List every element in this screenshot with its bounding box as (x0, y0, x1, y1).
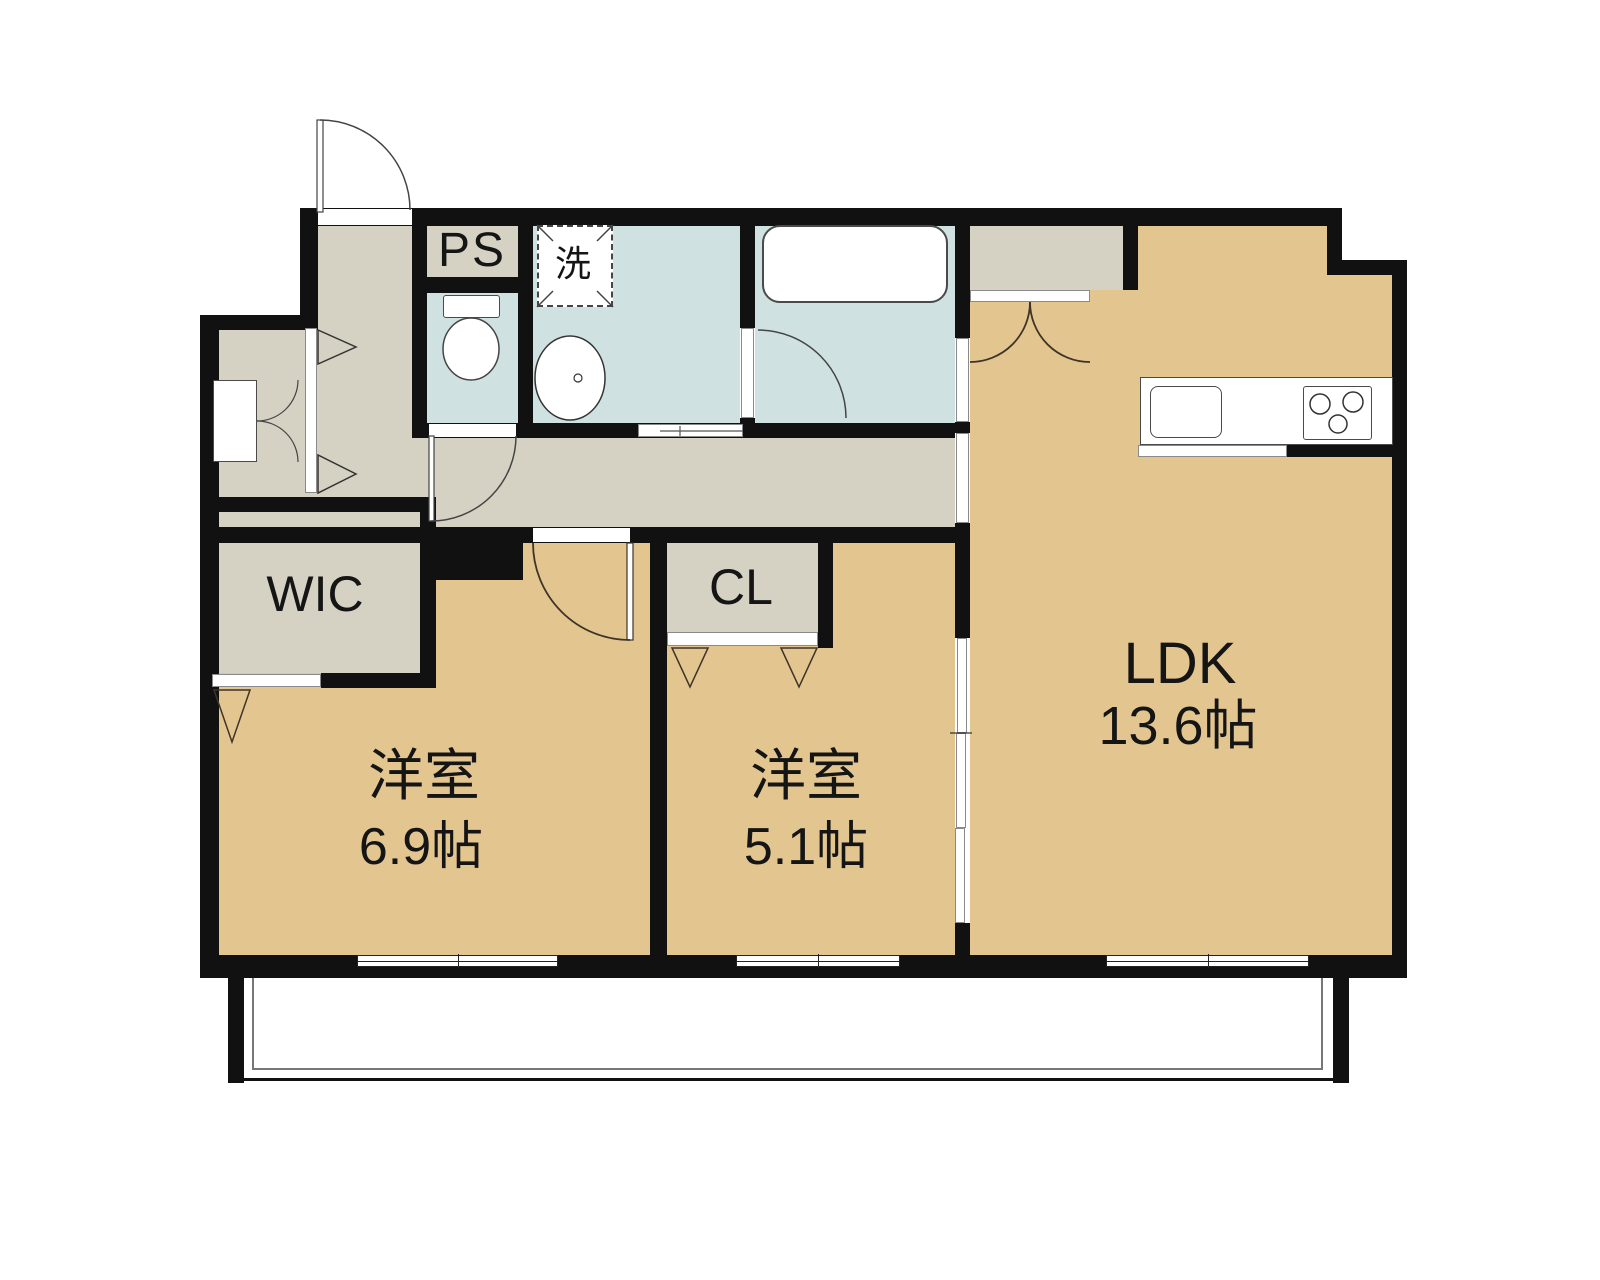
floor-plan: PS 洗 WIC CL 洋室 6.9帖 洋室 5.1帖 LDK 13.6帖 (0, 0, 1600, 1280)
wall (518, 208, 533, 438)
hall-ldk-opening-lower (956, 433, 969, 523)
wall-right (1392, 260, 1407, 975)
ldk-window (1106, 955, 1309, 967)
room1-name-label: 洋室 (368, 748, 480, 804)
wic-label: WIC (266, 569, 363, 619)
kitchen-sink (1150, 386, 1222, 438)
wall (412, 277, 518, 293)
wall (818, 543, 833, 648)
balcony-end-wall-left (228, 965, 244, 1083)
wall (200, 315, 318, 330)
cl-label: CL (709, 562, 773, 612)
entrance-door-opening (318, 209, 412, 225)
building-notch (1342, 208, 1393, 261)
wall (955, 208, 970, 338)
cl-folding-door (667, 632, 818, 646)
ldk-closet-area (970, 226, 1123, 290)
laundry-label: 洗 (555, 246, 591, 282)
room2-size-label: 5.1帖 (744, 821, 868, 873)
wall (955, 923, 970, 958)
wall (412, 208, 427, 438)
entrance-step-strip (305, 328, 317, 493)
ldk-size-label: 13.6帖 (1098, 699, 1257, 753)
balcony-outer-rail (228, 1078, 1349, 1081)
shoe-cabinet (213, 380, 257, 462)
ps-label: PS (438, 227, 506, 275)
wall (200, 497, 436, 512)
wall (321, 673, 436, 688)
room2-window (736, 955, 900, 967)
entrance-door-arc (320, 120, 410, 210)
ldk-name-label: LDK (1124, 635, 1237, 693)
room1-size-label: 6.9帖 (359, 821, 483, 873)
hall-ldk-opening-upper (956, 338, 969, 422)
wall (1327, 208, 1342, 268)
ldk-closet-door-opening (970, 290, 1090, 302)
stove (1303, 386, 1372, 440)
wall-kitchen-stub (1287, 443, 1393, 457)
room2-ldk-sliding-panel (955, 828, 965, 923)
washroom-sliding-door (638, 424, 743, 437)
wall (300, 208, 318, 330)
bath-door-leaf (741, 328, 754, 418)
kitchen-counter-front (1138, 445, 1287, 457)
toilet-tank (443, 295, 500, 318)
wic-folding-door (212, 674, 321, 687)
toilet-door-opening (429, 424, 516, 437)
room2-name-label: 洋室 (750, 748, 862, 804)
wall (1123, 208, 1138, 290)
wall (740, 215, 755, 328)
wall-between-rooms (650, 527, 667, 958)
wall (955, 422, 970, 433)
room2-ldk-sliding-panel (956, 733, 966, 828)
entrance-door-leaf (317, 120, 323, 212)
balcony-inner-rail (252, 974, 1323, 1070)
balcony-end-wall-right (1333, 965, 1349, 1083)
wall-pillar (422, 527, 523, 580)
room1-window (357, 955, 558, 967)
ldk-area (970, 226, 1392, 955)
room1-door-opening (533, 528, 630, 542)
bathtub (762, 225, 948, 303)
room2-ldk-sliding-panel (957, 638, 967, 733)
